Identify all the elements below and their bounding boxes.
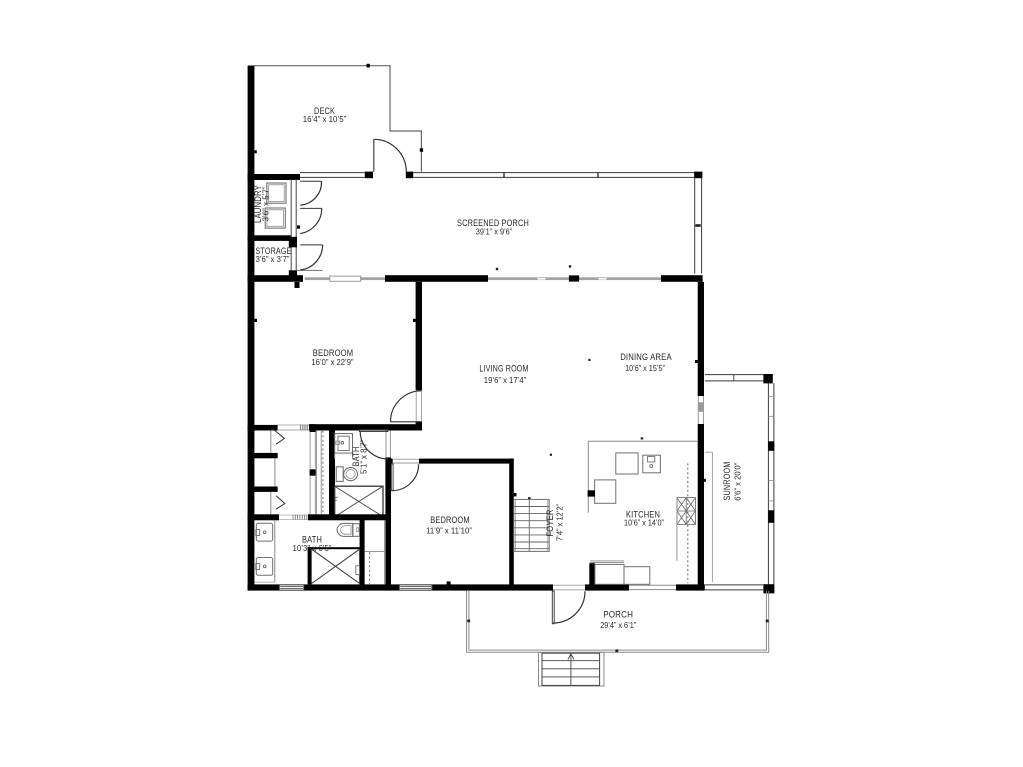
svg-text:SUNROOM: SUNROOM — [722, 462, 732, 501]
svg-text:19’6” x 17’4”: 19’6” x 17’4” — [484, 375, 527, 385]
svg-text:3’6” x 5’7”: 3’6” x 5’7” — [261, 186, 271, 221]
svg-text:11’9” x 11’10”: 11’9” x 11’10” — [426, 525, 472, 535]
svg-text:10’6” x 15’5”: 10’6” x 15’5” — [625, 363, 665, 373]
svg-text:DINING AREA: DINING AREA — [620, 352, 672, 362]
svg-text:16’0” x 22’9”: 16’0” x 22’9” — [311, 357, 353, 367]
svg-text:3’6” x 3’7”: 3’6” x 3’7” — [256, 254, 290, 264]
svg-text:39’1” x 9’6”: 39’1” x 9’6” — [476, 226, 513, 236]
svg-text:7’4” x 12’2”: 7’4” x 12’2” — [554, 504, 564, 541]
svg-text:5’1” x 8’7”: 5’1” x 8’7” — [359, 440, 369, 474]
svg-text:BEDROOM: BEDROOM — [430, 515, 470, 525]
svg-text:LIVING ROOM: LIVING ROOM — [479, 363, 528, 373]
svg-text:29’4” x 6’1”: 29’4” x 6’1” — [600, 620, 636, 630]
svg-text:10’6” x 14’0”: 10’6” x 14’0” — [624, 517, 664, 527]
svg-text:6’6” x 20’0”: 6’6” x 20’0” — [732, 463, 742, 501]
svg-text:PORCH: PORCH — [603, 609, 633, 619]
svg-text:16’4” x 10’5”: 16’4” x 10’5” — [303, 114, 347, 124]
svg-text:10’3” x 6’5”: 10’3” x 6’5” — [293, 543, 332, 553]
